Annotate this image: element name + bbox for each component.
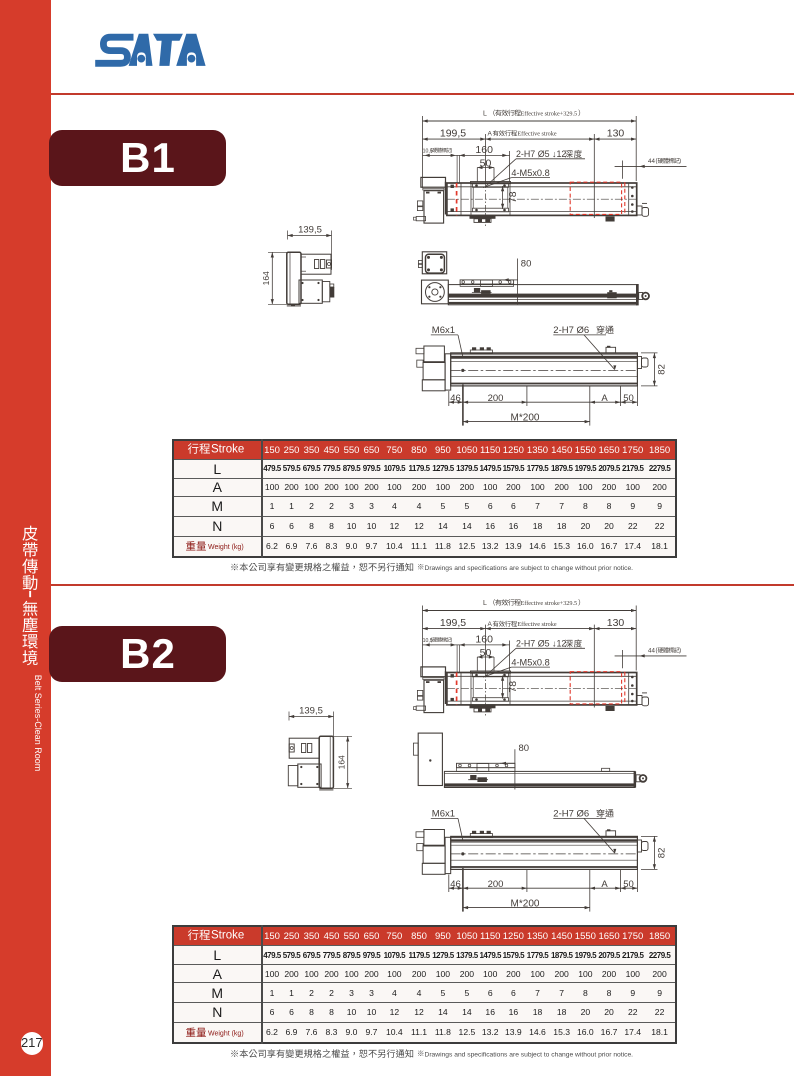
- svg-text:(: (: [656, 648, 658, 654]
- svg-text:4-M5x0.8: 4-M5x0.8: [511, 168, 549, 178]
- svg-text:139,5: 139,5: [298, 224, 322, 235]
- svg-text:): ): [679, 648, 681, 654]
- svg-text:50: 50: [480, 647, 492, 659]
- svg-text:199,5: 199,5: [440, 617, 466, 629]
- svg-text:Stroke: Stroke: [211, 930, 244, 942]
- svg-text:4-M5x0.8: 4-M5x0.8: [511, 658, 549, 668]
- svg-text:164: 164: [261, 271, 271, 285]
- svg-text:46: 46: [450, 393, 461, 404]
- svg-text:199,5: 199,5: [440, 127, 466, 139]
- svg-text:50: 50: [623, 393, 634, 404]
- svg-text:): ): [451, 148, 453, 154]
- svg-text:44: 44: [648, 158, 655, 165]
- svg-text:): ): [679, 159, 681, 165]
- svg-text:160: 160: [475, 144, 493, 156]
- svg-text:Drawings and specifications ar: Drawings and specifications are subject …: [425, 565, 634, 572]
- svg-text:M*200: M*200: [511, 413, 540, 424]
- svg-text:A: A: [488, 621, 493, 628]
- svg-text:50: 50: [480, 157, 492, 169]
- svg-text:Effective stroke+329.5: Effective stroke+329.5: [521, 600, 578, 607]
- svg-text:200: 200: [488, 879, 504, 890]
- svg-text:200: 200: [488, 393, 504, 404]
- svg-text:L: L: [483, 600, 487, 607]
- svg-text:78: 78: [507, 681, 519, 693]
- svg-text:M*200: M*200: [511, 899, 540, 910]
- svg-text:Effective stroke: Effective stroke: [517, 130, 556, 137]
- svg-text:Drawings and specifications ar: Drawings and specifications are subject …: [425, 1052, 634, 1059]
- svg-text:78: 78: [507, 191, 519, 203]
- svg-text:130: 130: [607, 617, 625, 629]
- svg-text:L: L: [483, 111, 487, 118]
- svg-text:Weight (kg): Weight (kg): [208, 1030, 244, 1037]
- svg-text:Weight (kg): Weight (kg): [208, 544, 244, 551]
- svg-text:82: 82: [656, 848, 667, 859]
- svg-text:80: 80: [521, 258, 532, 269]
- svg-text:139,5: 139,5: [299, 705, 323, 716]
- svg-text:46: 46: [450, 879, 461, 890]
- svg-text:Effective stroke: Effective stroke: [517, 621, 556, 628]
- svg-text:A: A: [601, 393, 608, 404]
- svg-text:2-H7 Ø5 ↓12: 2-H7 Ø5 ↓12: [516, 149, 566, 159]
- svg-text:(: (: [656, 159, 658, 165]
- svg-text:(: (: [431, 148, 433, 154]
- svg-text:): ): [451, 637, 453, 643]
- svg-text:2-H7 Ø5 ↓12: 2-H7 Ø5 ↓12: [516, 639, 566, 649]
- svg-text:Stroke: Stroke: [211, 443, 244, 455]
- svg-text:82: 82: [656, 364, 667, 375]
- svg-text:(: (: [431, 637, 433, 643]
- svg-text:Effective stroke+329.5: Effective stroke+329.5: [521, 111, 578, 118]
- svg-text:164: 164: [337, 755, 347, 769]
- svg-text:80: 80: [519, 743, 530, 754]
- svg-text:160: 160: [475, 634, 493, 646]
- svg-text:50: 50: [623, 879, 634, 890]
- svg-text:44: 44: [648, 648, 655, 655]
- svg-text:A: A: [488, 130, 493, 137]
- svg-text:A: A: [601, 879, 608, 890]
- svg-text:130: 130: [607, 127, 625, 139]
